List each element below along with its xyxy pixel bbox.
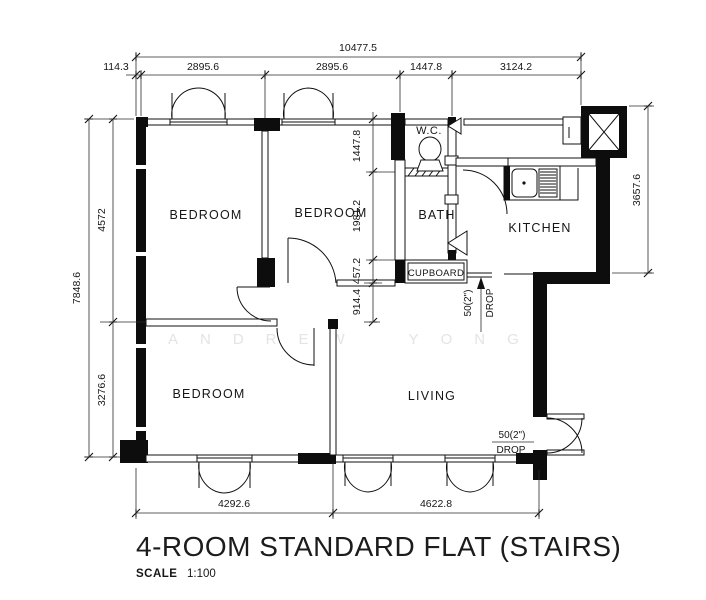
sink-icon <box>456 158 596 200</box>
dim-top-chain: 114.3 2895.6 2895.6 1447.8 3124.2 <box>103 52 585 118</box>
kitchen-right-wall <box>596 155 610 277</box>
scale-value: 1:100 <box>187 568 216 580</box>
bath-wall-column <box>391 113 405 160</box>
dim-label: 2895.6 <box>316 61 348 73</box>
door-swing-icon <box>463 170 507 214</box>
dim-label: 7848.6 <box>71 272 83 304</box>
bath-vent-window <box>445 195 458 204</box>
dim-label: 457.2 <box>351 258 363 284</box>
room-label-wc: W.C. <box>416 125 442 137</box>
dim-label: 1447.8 <box>351 130 363 162</box>
casement-window-icon <box>197 455 252 493</box>
floor-plan-page: ANDREW YONG <box>0 0 706 600</box>
dim-top-overall: 10477.5 <box>132 42 585 61</box>
kitchen-drop-note: 50(2") DROP <box>463 277 496 332</box>
casement-window-icon <box>445 455 495 492</box>
dim-label: 3124.2 <box>500 61 532 73</box>
drop-annotations: 50(2") DROP 50(2") DROP <box>463 277 534 456</box>
room-label-living: LIVING <box>408 389 456 403</box>
door-swing-icon <box>288 238 336 283</box>
dim-label: 1981.2 <box>351 200 363 232</box>
room-label-cupboard: CUPBOARD <box>408 268 464 279</box>
entrance-drop-word: DROP <box>497 445 526 456</box>
dim-label: 4622.8 <box>420 498 452 510</box>
room-label-kitchen: KITCHEN <box>508 221 571 235</box>
dim-label: 4572 <box>96 208 108 232</box>
watermark: ANDREW YONG <box>168 331 541 348</box>
dim-label: 3657.6 <box>631 174 643 206</box>
casement-window-icon <box>282 88 335 125</box>
kitchen-ledge-wall <box>533 272 610 284</box>
corner-column <box>120 440 148 463</box>
dim-label: 3276.6 <box>96 374 108 406</box>
dim-label: 914.4 <box>351 289 363 315</box>
arrow-up-icon <box>477 277 485 289</box>
dim-label: 114.3 <box>103 61 129 73</box>
kitchen-drop-edge <box>467 273 533 277</box>
entrance-drop-note: 50(2") DROP <box>492 430 534 456</box>
casement-window-icon <box>170 88 227 125</box>
dim-label: 2895.6 <box>187 61 219 73</box>
drawing-title: 4-ROOM STANDARD FLAT (STAIRS) <box>136 531 621 562</box>
dim-bottom-chain: 4292.6 4622.8 <box>132 463 543 519</box>
scale-label: SCALE <box>136 568 177 580</box>
living-right-wall <box>533 284 547 417</box>
door-swing-icon <box>237 287 271 321</box>
kitchen-drop-word: DROP <box>485 288 496 317</box>
dim-label: 4292.6 <box>218 498 250 510</box>
room-label-bedroom1: BEDROOM <box>170 208 243 222</box>
kitchen-drop-value: 50(2") <box>463 290 474 317</box>
casement-window-icon <box>343 455 393 492</box>
dim-left-overall: 7848.6 <box>71 115 93 461</box>
refuse-chute-icon <box>563 106 627 158</box>
interior-walls <box>146 127 533 455</box>
dim-label: 10477.5 <box>339 42 377 54</box>
entrance-drop-value: 50(2") <box>499 430 526 441</box>
room-label-bath: BATH <box>418 208 455 222</box>
title-block: 4-ROOM STANDARD FLAT (STAIRS) SCALE 1:10… <box>136 531 621 580</box>
dim-middle-chain: 1447.8 1981.2 457.2 914.4 <box>351 112 395 326</box>
toilet-icon <box>417 137 443 171</box>
dim-label: 1447.8 <box>410 61 442 73</box>
floor-plan-drawing: ANDREW YONG <box>0 0 706 600</box>
entrance-double-door-icon <box>547 414 584 455</box>
room-label-bedroom3: BEDROOM <box>173 387 246 401</box>
